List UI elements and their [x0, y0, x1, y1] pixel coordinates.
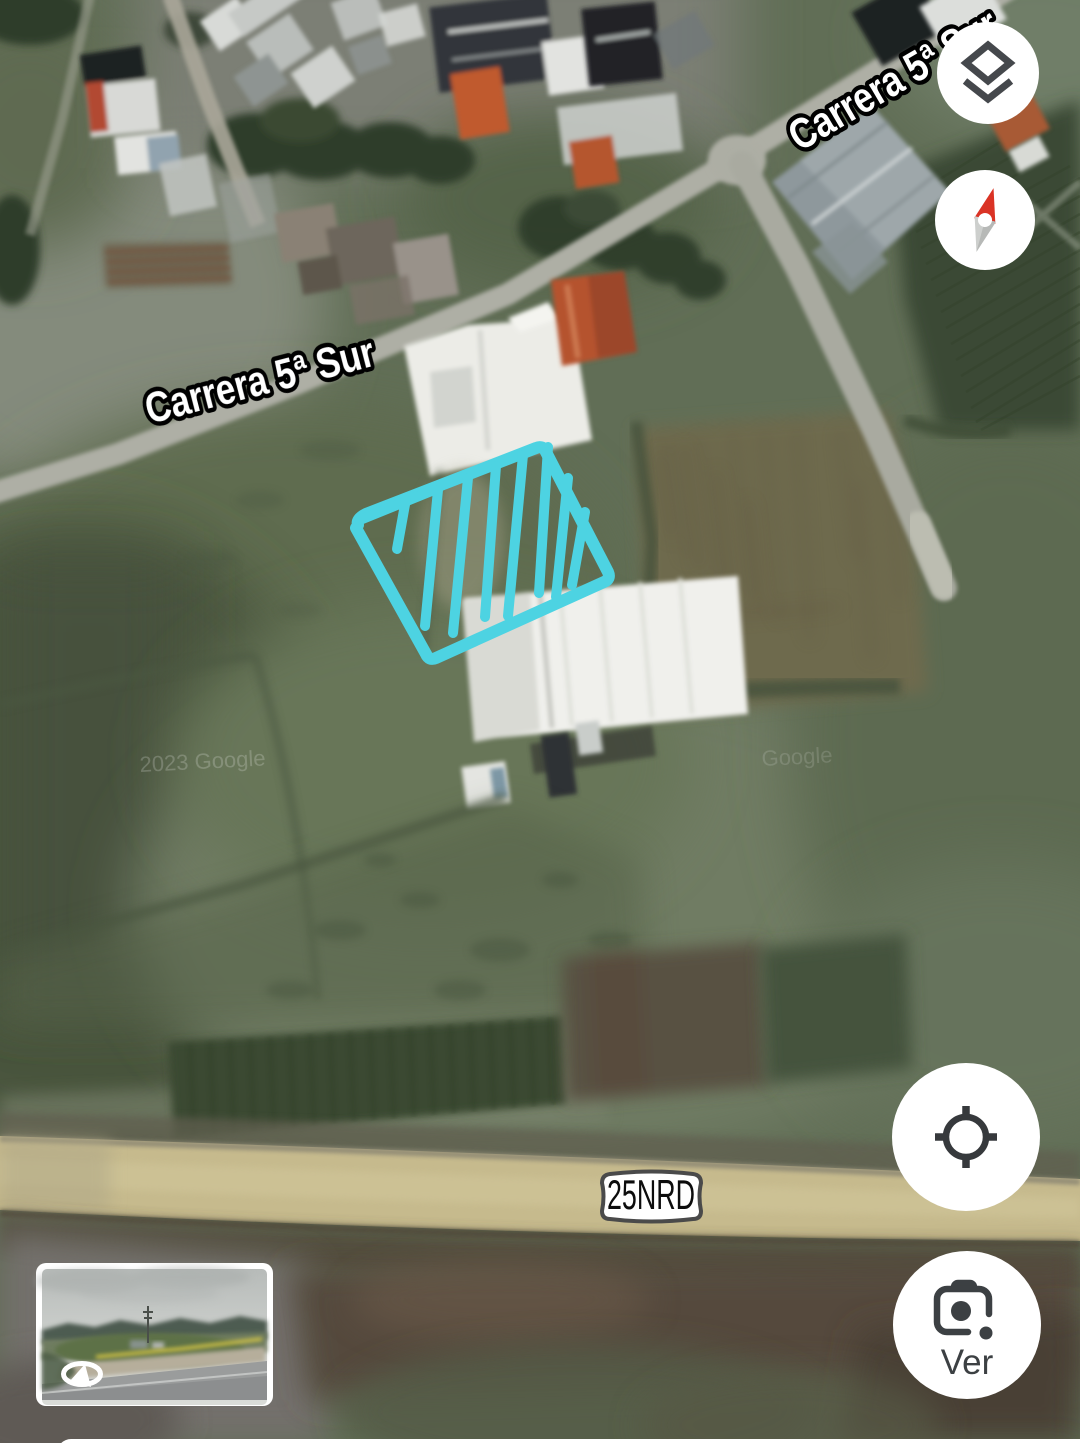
svg-text:25NRD: 25NRD: [607, 1171, 695, 1218]
svg-text:Google: Google: [761, 742, 833, 771]
svg-text:Ver: Ver: [941, 1343, 994, 1382]
